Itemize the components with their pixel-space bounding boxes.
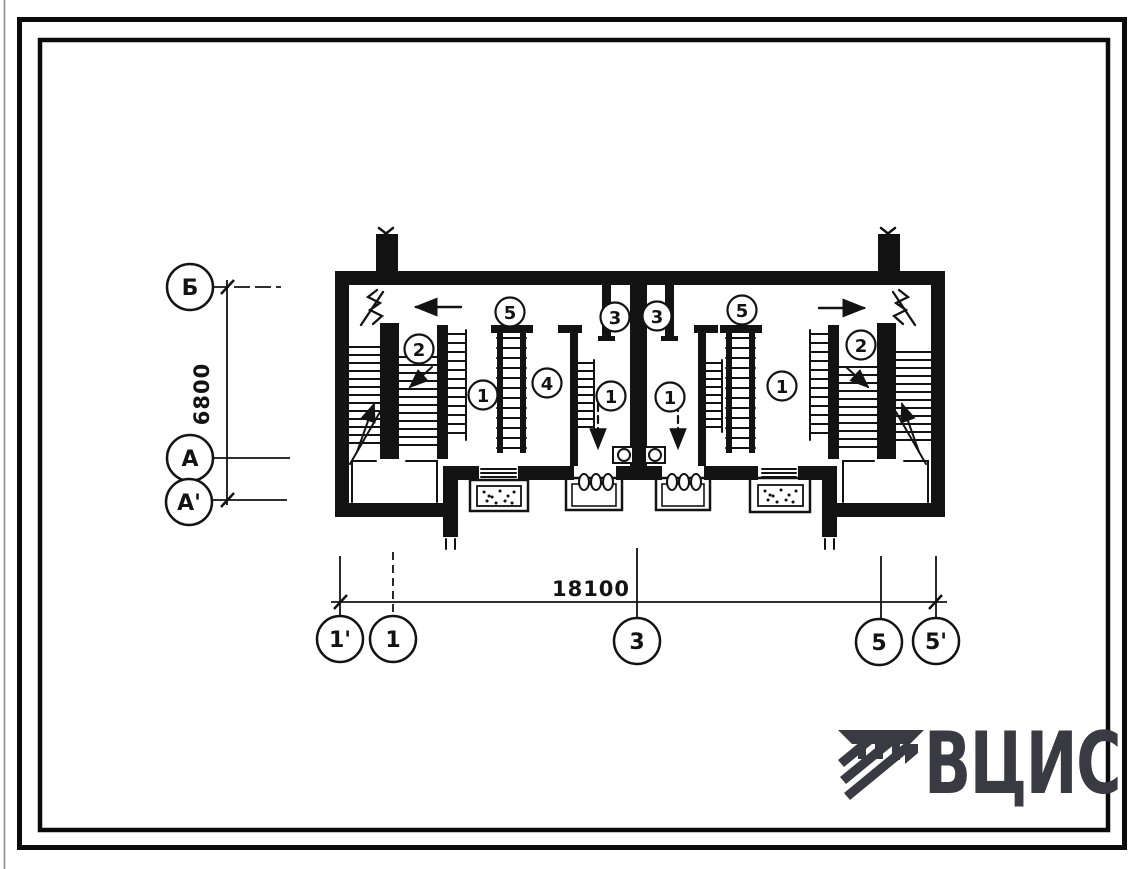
axis-circle-b: Б: [167, 264, 213, 310]
wall-room3-left-foot: [598, 336, 615, 341]
stair-diagonal-right: [896, 412, 926, 464]
vestibule-right: [843, 461, 928, 502]
step-oval: [591, 474, 601, 490]
walls: [335, 234, 945, 537]
logo-text: ВЦИС: [924, 713, 1120, 814]
stair-flight-right-2: [896, 352, 931, 440]
axis-label: А: [181, 447, 198, 472]
axis-label: 3: [629, 630, 644, 655]
axis-label: 5: [871, 631, 886, 656]
step-oval: [667, 474, 677, 490]
drain-circle: [649, 449, 661, 461]
axis-label: Б: [182, 276, 199, 301]
axis-circle-3: 3: [614, 618, 660, 664]
room-label-1-d: 1: [768, 372, 797, 401]
step-oval: [579, 474, 589, 490]
break-line-right: [893, 290, 915, 325]
break-line-left: [361, 290, 383, 325]
room-number: 3: [651, 307, 664, 328]
entrance-steps-b: [566, 466, 622, 510]
pit-inner: [758, 485, 803, 506]
room-label-5-left: 5: [496, 298, 525, 327]
stair-wall-left-mid: [380, 323, 399, 459]
axis-label: 1: [385, 628, 400, 653]
wall-room3-right-foot: [661, 336, 678, 341]
axis-circle-5-prime: 5': [913, 618, 959, 664]
floor-plan: [335, 228, 945, 549]
ladder-partition-a: [578, 360, 594, 432]
chute-b-rail-left: [726, 328, 732, 453]
wall-stub-left: [443, 480, 458, 537]
partition-a: [570, 327, 578, 470]
axis-label: 1': [329, 628, 351, 653]
room-label-2-right: 2: [847, 331, 876, 360]
axis-circles: Б А А' 1' 1 3 5 5': [166, 264, 959, 665]
dimension-horizontal-text: 18100: [552, 577, 630, 601]
logo-emblem-icon: [838, 730, 924, 800]
room-label-1-b: 1: [597, 382, 626, 411]
emblem-top-bar: [838, 730, 924, 744]
ladder-a: [448, 330, 466, 440]
room-number: 5: [504, 303, 517, 324]
pit-stipple: [765, 490, 796, 502]
room-number: 2: [855, 336, 868, 357]
partition-b: [698, 327, 706, 470]
stub-left-ticks: [446, 539, 455, 549]
partition-a-cap: [558, 325, 582, 333]
flight-arrow-left: [410, 367, 432, 387]
room-label-4: 4: [533, 369, 562, 398]
dimension-vertical-text: 6800: [190, 363, 214, 425]
ladder-partition-b: [706, 360, 722, 432]
wall-left: [335, 271, 349, 517]
drawing-canvas: 6800 18100 Б А А' 1' 1: [0, 0, 1139, 869]
room-number: 1: [776, 377, 789, 398]
chute-b-rail-right: [749, 328, 755, 453]
room-number: 3: [609, 308, 622, 329]
room-label-3-right: 3: [643, 302, 672, 331]
room-number: 2: [413, 340, 426, 361]
wall-right: [931, 271, 945, 517]
room-label-1-a: 1: [469, 381, 498, 410]
stair-wall-left-right: [437, 325, 448, 459]
wall-bottom-right-block: [823, 503, 945, 517]
stair-wall-right-left: [828, 325, 839, 459]
axis-circle-5: 5: [856, 619, 902, 665]
floor-drain-left: [613, 447, 633, 463]
logo-wordmark: ВЦИС: [924, 713, 1120, 814]
partition-b-cap: [694, 325, 718, 333]
room-label-5-right: 5: [728, 296, 757, 325]
room-number: 1: [664, 388, 677, 409]
step-oval: [691, 474, 701, 490]
room-number: 5: [736, 301, 749, 322]
room-label-1-c: 1: [656, 383, 685, 412]
stub-right-ticks: [825, 539, 834, 549]
room-number: 1: [605, 387, 618, 408]
wall-bottom-left-block: [335, 503, 457, 517]
pit-stipple: [484, 491, 514, 503]
axis-circle-1-prime: 1': [317, 616, 363, 662]
ladder-b: [810, 330, 828, 440]
axis-circle-a: А: [167, 435, 213, 481]
axis-label: А': [177, 491, 201, 516]
wall-stub-right: [822, 480, 837, 537]
logo: ВЦИС: [838, 713, 1120, 814]
drain-circle: [618, 449, 630, 461]
stair-flight-left-2: [399, 357, 437, 445]
entrance-steps-c: [656, 466, 710, 510]
stair-wall-right-mid: [877, 323, 896, 459]
chute-b-cap: [720, 325, 762, 333]
step-oval: [603, 474, 613, 490]
room-label-2-left: 2: [405, 335, 434, 364]
room-number: 4: [541, 374, 554, 395]
room-number: 1: [477, 386, 490, 407]
axis-circle-1: 1: [370, 616, 416, 662]
scanned-drawing-page: 6800 18100 Б А А' 1' 1: [0, 0, 1139, 869]
floor-drain-right: [645, 447, 665, 463]
wall-top: [335, 271, 945, 285]
axis-label: 5': [925, 630, 947, 655]
chute-a-rail-right: [520, 328, 526, 453]
vestibule-left: [352, 461, 437, 502]
axis-circle-a-prime: А': [166, 479, 212, 525]
step-oval: [679, 474, 689, 490]
room-label-3-left: 3: [601, 303, 630, 332]
pit-inner: [477, 486, 521, 506]
